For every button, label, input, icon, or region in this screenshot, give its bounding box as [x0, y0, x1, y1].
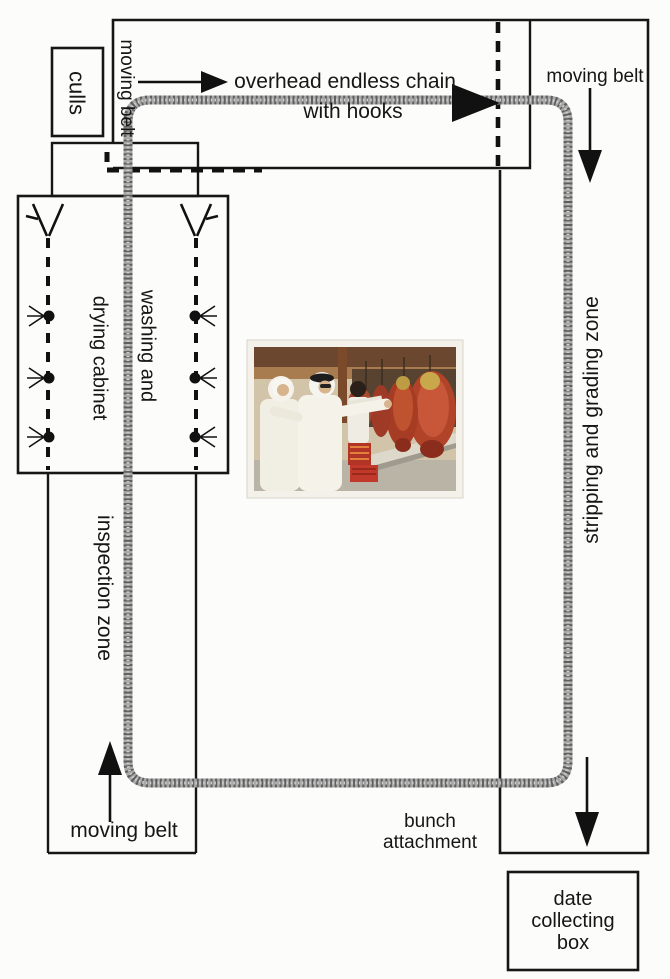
- chain-arrowhead-right-icon: [452, 84, 500, 122]
- date-box-line3: box: [557, 932, 589, 954]
- inspection-photo: [247, 340, 463, 498]
- date-box-line1: date: [554, 888, 593, 910]
- bunch-attachment-label: bunch attachment: [365, 811, 495, 853]
- spray-pipes: [26, 204, 218, 470]
- washing-label-line1: washing and: [137, 290, 158, 402]
- moving-belt-right-label: moving belt: [546, 67, 643, 87]
- moving-belt-top-label: moving belt: [116, 39, 136, 136]
- moving-belt-bottom-label: moving belt: [70, 820, 177, 842]
- bunch-attachment-line1: bunch: [365, 811, 495, 832]
- date-box-line2: collecting: [531, 910, 614, 932]
- stripping-grading-zone-label: stripping and grading zone: [581, 296, 603, 544]
- process-flow-diagram: culls moving belt overhead endless chain…: [0, 0, 670, 979]
- washing-label-line2: drying cabinet: [89, 296, 110, 421]
- overhead-chain-label-line2: with hooks: [303, 101, 402, 123]
- inspection-lane: [48, 473, 196, 853]
- date-collecting-box-label: date collecting box: [508, 872, 638, 970]
- overhead-chain-label-line1: overhead endless chain: [234, 71, 456, 93]
- bunch-attachment-line2: attachment: [365, 832, 495, 853]
- spray-nozzle-icons: [27, 306, 217, 447]
- culls-label: culls: [65, 71, 88, 115]
- inspection-zone-label: inspection zone: [93, 515, 115, 661]
